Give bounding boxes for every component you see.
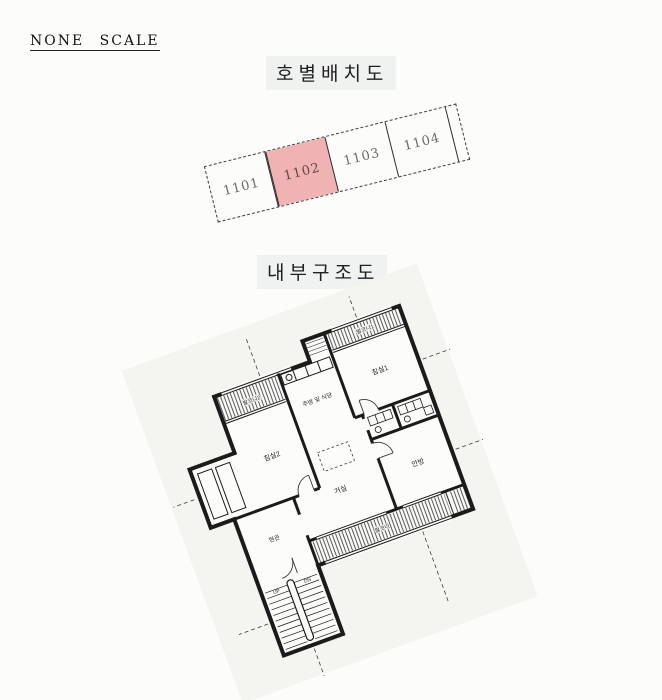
- floor-plan: UP DN 발코니2 발코니1 침실2 주방 및 식당 침실1 거실 안방 현관…: [119, 260, 543, 700]
- scale-note: NONE SCALE: [30, 33, 160, 51]
- unit-cell-1104: 1104: [386, 107, 460, 176]
- floor-plan-drawing: UP DN 발코니2 발코니1 침실2 주방 및 식당 침실1 거실 안방 현관…: [119, 260, 543, 700]
- document-page: NONE SCALE 호별배치도 1101 1102 1103 1104 내부구…: [0, 0, 662, 700]
- unit-layout-title: 호별배치도: [266, 56, 396, 90]
- unit-layout-strip: 1101 1102 1103 1104: [204, 103, 470, 222]
